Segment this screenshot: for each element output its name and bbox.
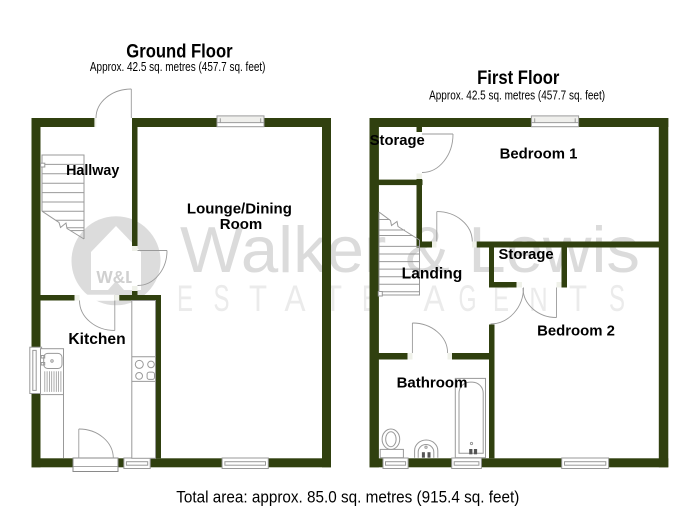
svg-text:Storage: Storage (370, 133, 425, 149)
svg-text:Room: Room (220, 216, 263, 233)
svg-text:Approx. 42.5 sq. metres (457.7: Approx. 42.5 sq. metres (457.7 sq. feet) (90, 60, 266, 74)
svg-text:A: A (424, 278, 445, 319)
svg-text:Bedroom 1: Bedroom 1 (500, 147, 578, 163)
svg-text:E: E (177, 278, 193, 319)
svg-text:Hallway: Hallway (66, 163, 119, 179)
svg-text:Landing: Landing (402, 266, 463, 283)
svg-text:Lounge/Dining: Lounge/Dining (187, 200, 292, 217)
svg-text:Storage: Storage (499, 247, 554, 263)
svg-text:W&L: W&L (96, 267, 136, 287)
svg-text:T: T (249, 278, 267, 319)
svg-text:Kitchen: Kitchen (68, 331, 125, 348)
svg-text:S: S (214, 278, 230, 319)
svg-text:Approx. 42.5 sq. metres (457.7: Approx. 42.5 sq. metres (457.7 sq. feet) (429, 89, 605, 103)
svg-text:S: S (609, 278, 625, 319)
svg-text:Total area: approx. 85.0 sq. m: Total area: approx. 85.0 sq. metres (915… (176, 487, 519, 506)
svg-text:A: A (285, 278, 306, 319)
svg-text:First Floor: First Floor (477, 68, 560, 89)
svg-text:Bedroom 2: Bedroom 2 (537, 324, 615, 340)
svg-text:T: T (569, 278, 587, 319)
svg-text:Bathroom: Bathroom (397, 375, 468, 392)
svg-text:G: G (459, 278, 477, 319)
